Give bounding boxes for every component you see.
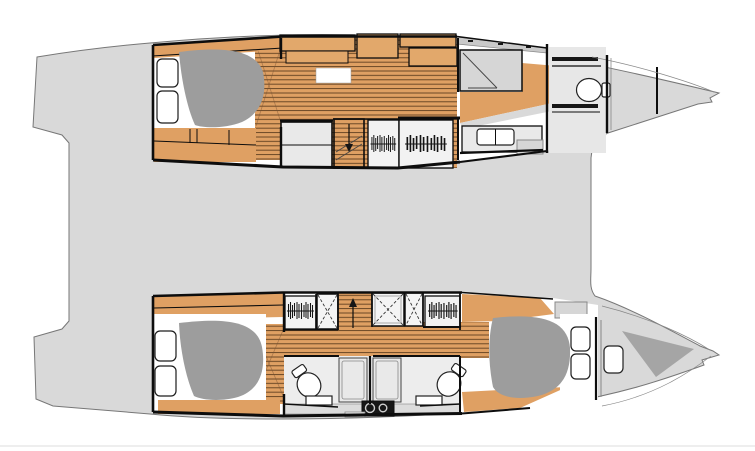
pillow (155, 331, 176, 361)
track-stop (498, 43, 503, 45)
pillow (571, 327, 590, 351)
companionway-stairs-down (334, 119, 364, 168)
shower-stall (373, 358, 401, 402)
pillow (155, 366, 176, 396)
floor-plan-page (0, 0, 755, 451)
companionway-stairs-up (338, 293, 372, 330)
overhead-shelf (286, 51, 348, 63)
hanging-locker (285, 296, 316, 329)
double-berth-mattress (179, 321, 263, 400)
upper-toilet-room (549, 47, 610, 153)
upper-midship-dressing (280, 34, 457, 168)
floor-hatch (316, 68, 351, 83)
sink (416, 396, 442, 405)
shelf-bar (552, 57, 598, 61)
double-berth-mattress (489, 316, 570, 398)
overhead-cabinet (409, 48, 457, 66)
deck-hatch (317, 294, 338, 329)
floor-plan-canvas (0, 0, 755, 451)
toilet-room-floor (549, 47, 606, 153)
sink (306, 396, 332, 405)
lower-aft-cabin (154, 293, 285, 414)
hull-window (604, 346, 623, 373)
lower-bathrooms (284, 356, 470, 417)
shower-room (460, 50, 522, 91)
pillow (571, 354, 590, 379)
track-stop (468, 40, 473, 42)
shower-stall (339, 358, 367, 402)
double-berth-mattress (179, 49, 264, 127)
shelf-bar (552, 104, 598, 108)
pillow (157, 59, 178, 87)
pillow (157, 91, 178, 123)
upper-aft-cabin (152, 36, 284, 162)
foot-shelf (154, 128, 256, 162)
